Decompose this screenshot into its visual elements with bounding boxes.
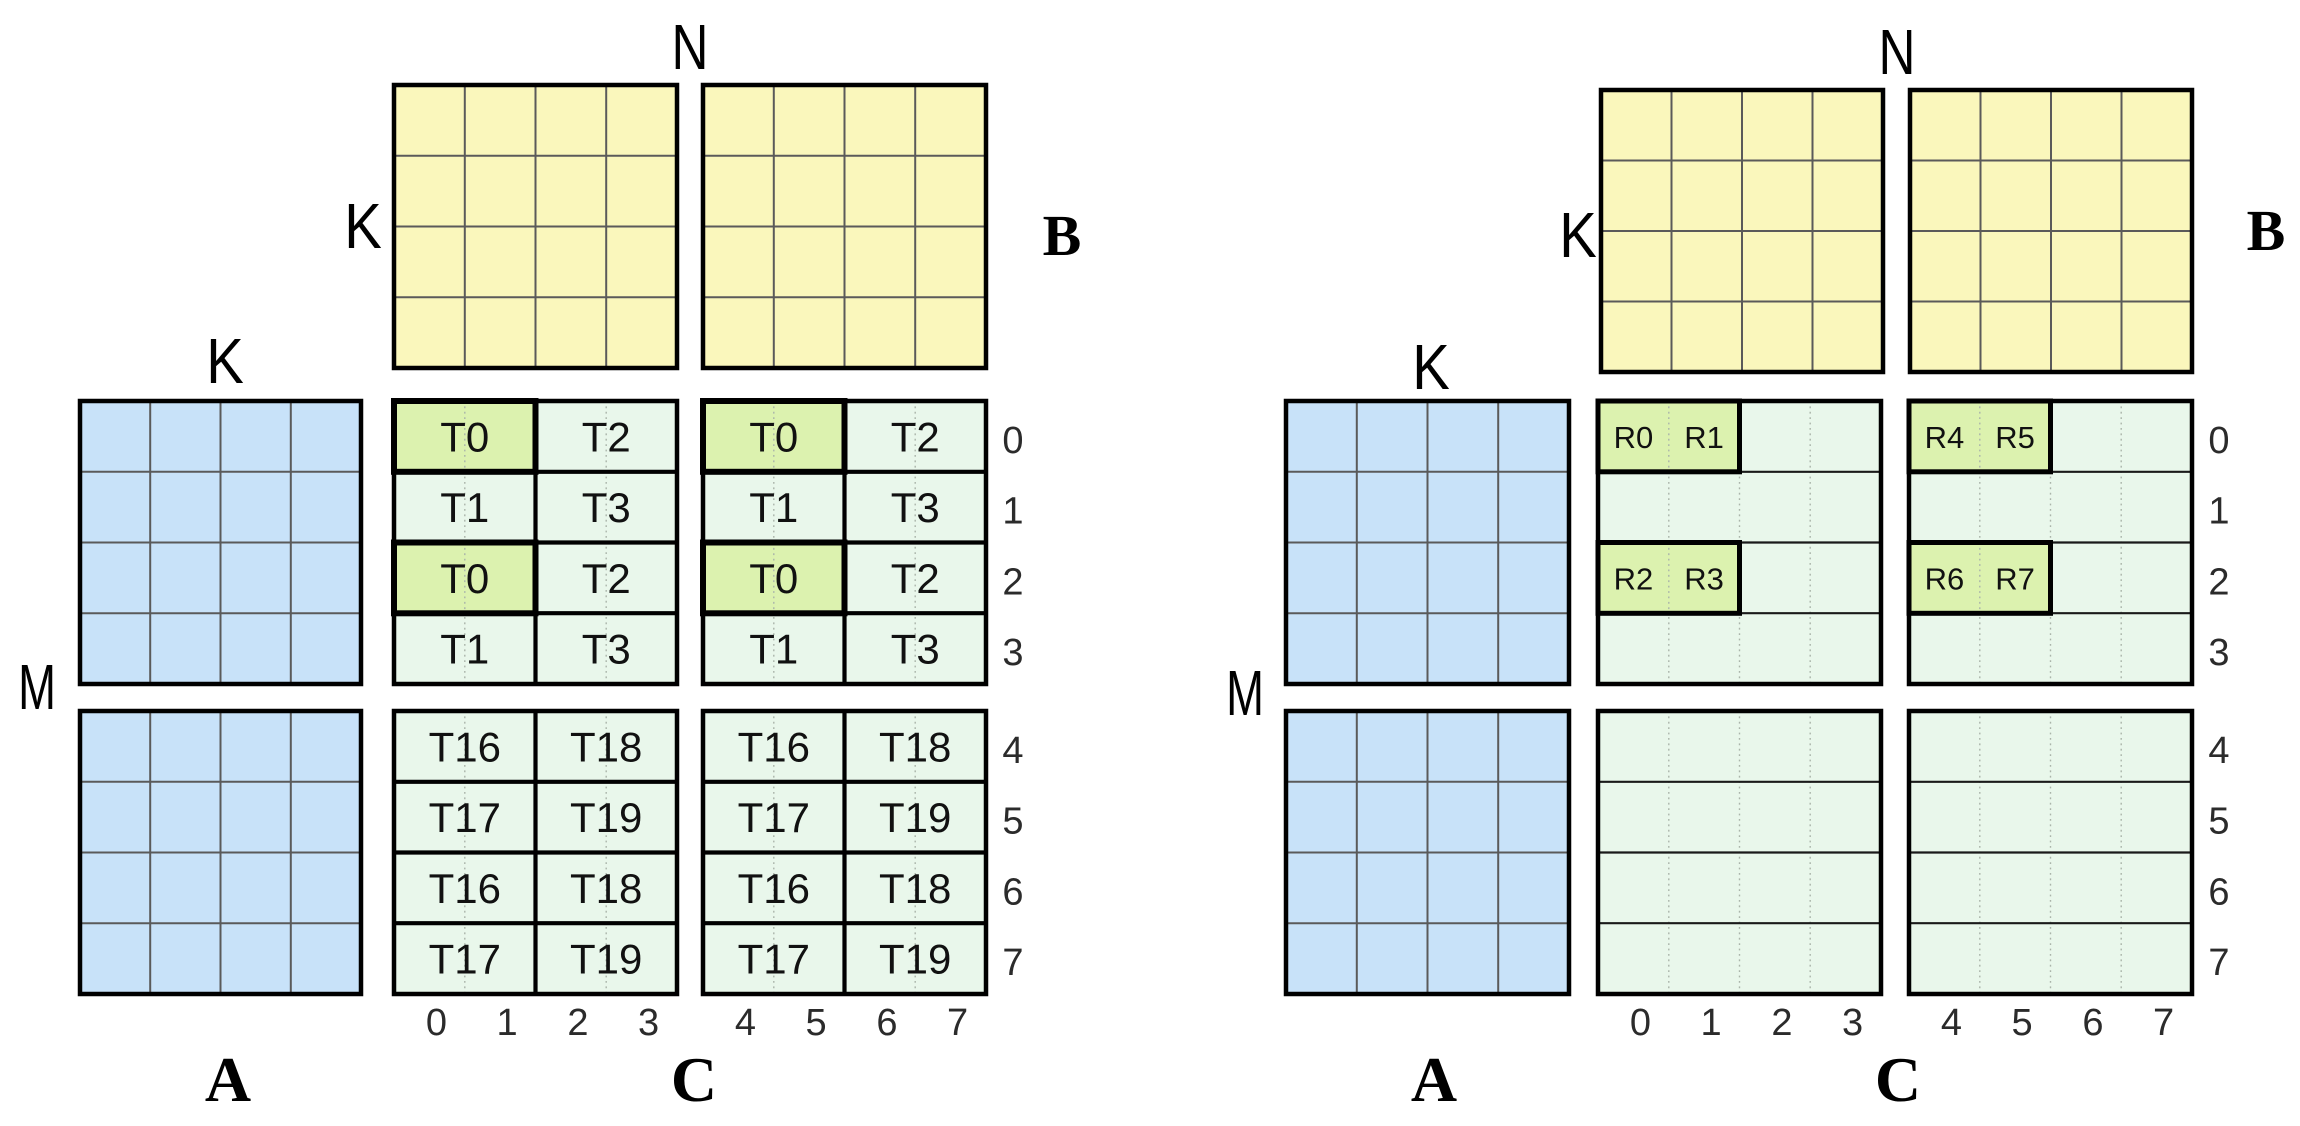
svg-text:C: C bbox=[671, 1044, 717, 1115]
svg-text:A: A bbox=[1411, 1044, 1457, 1115]
svg-text:K: K bbox=[344, 190, 382, 262]
svg-text:4: 4 bbox=[2208, 730, 2229, 772]
svg-text:T2: T2 bbox=[891, 413, 940, 460]
svg-text:T16: T16 bbox=[429, 865, 501, 912]
svg-text:1: 1 bbox=[1002, 491, 1023, 533]
svg-text:5: 5 bbox=[1002, 801, 1023, 843]
svg-text:7: 7 bbox=[2153, 1002, 2174, 1044]
svg-text:T3: T3 bbox=[891, 626, 940, 673]
svg-text:M: M bbox=[1226, 657, 1264, 728]
svg-text:T1: T1 bbox=[749, 626, 798, 673]
svg-text:T0: T0 bbox=[749, 413, 798, 460]
svg-text:4: 4 bbox=[1941, 1002, 1962, 1044]
svg-text:K: K bbox=[1412, 331, 1450, 403]
svg-text:T2: T2 bbox=[582, 413, 631, 460]
svg-text:3: 3 bbox=[1842, 1002, 1863, 1044]
svg-text:6: 6 bbox=[1002, 871, 1023, 913]
svg-text:T1: T1 bbox=[440, 626, 489, 673]
svg-text:T16: T16 bbox=[738, 865, 810, 912]
svg-text:T17: T17 bbox=[738, 794, 810, 841]
svg-text:N: N bbox=[672, 13, 709, 84]
svg-text:T19: T19 bbox=[570, 794, 642, 841]
svg-text:6: 6 bbox=[2208, 871, 2229, 913]
svg-text:T2: T2 bbox=[582, 555, 631, 602]
svg-text:0: 0 bbox=[426, 1002, 447, 1044]
svg-text:T18: T18 bbox=[879, 723, 951, 770]
svg-text:4: 4 bbox=[735, 1002, 756, 1044]
svg-text:B: B bbox=[1043, 203, 1082, 268]
svg-text:R0: R0 bbox=[1614, 420, 1654, 455]
svg-text:R5: R5 bbox=[1995, 420, 2035, 455]
svg-text:T17: T17 bbox=[738, 936, 810, 983]
svg-text:T19: T19 bbox=[879, 794, 951, 841]
svg-text:R3: R3 bbox=[1684, 561, 1724, 596]
svg-text:R4: R4 bbox=[1925, 420, 1965, 455]
svg-text:T0: T0 bbox=[749, 555, 798, 602]
svg-text:5: 5 bbox=[2208, 801, 2229, 843]
svg-text:B: B bbox=[2247, 198, 2286, 263]
svg-text:T19: T19 bbox=[570, 936, 642, 983]
svg-text:T1: T1 bbox=[440, 484, 489, 531]
svg-text:2: 2 bbox=[1002, 561, 1023, 603]
svg-text:0: 0 bbox=[1002, 420, 1023, 462]
svg-text:T1: T1 bbox=[749, 484, 798, 531]
svg-text:6: 6 bbox=[876, 1002, 897, 1044]
svg-text:T17: T17 bbox=[429, 936, 501, 983]
svg-text:T18: T18 bbox=[570, 865, 642, 912]
svg-text:N: N bbox=[1879, 18, 1916, 89]
svg-text:0: 0 bbox=[1630, 1002, 1651, 1044]
svg-text:1: 1 bbox=[1701, 1002, 1722, 1044]
svg-text:R1: R1 bbox=[1684, 420, 1724, 455]
svg-text:7: 7 bbox=[1002, 942, 1023, 984]
svg-text:M: M bbox=[18, 651, 56, 722]
svg-text:T17: T17 bbox=[429, 794, 501, 841]
svg-text:3: 3 bbox=[2208, 632, 2229, 674]
svg-text:0: 0 bbox=[2208, 420, 2229, 462]
svg-text:6: 6 bbox=[2082, 1002, 2103, 1044]
svg-text:2: 2 bbox=[2208, 561, 2229, 603]
svg-text:2: 2 bbox=[1771, 1002, 1792, 1044]
svg-text:C: C bbox=[1875, 1044, 1921, 1115]
svg-text:T3: T3 bbox=[891, 484, 940, 531]
svg-text:T18: T18 bbox=[570, 723, 642, 770]
svg-text:2: 2 bbox=[567, 1002, 588, 1044]
svg-text:3: 3 bbox=[638, 1002, 659, 1044]
svg-text:5: 5 bbox=[2012, 1002, 2033, 1044]
svg-text:R7: R7 bbox=[1995, 561, 2035, 596]
svg-text:1: 1 bbox=[497, 1002, 518, 1044]
svg-text:4: 4 bbox=[1002, 730, 1023, 772]
svg-text:K: K bbox=[1559, 199, 1597, 271]
svg-text:T18: T18 bbox=[879, 865, 951, 912]
svg-text:T3: T3 bbox=[582, 626, 631, 673]
svg-text:5: 5 bbox=[806, 1002, 827, 1044]
svg-text:T3: T3 bbox=[582, 484, 631, 531]
svg-text:T2: T2 bbox=[891, 555, 940, 602]
svg-text:T16: T16 bbox=[429, 723, 501, 770]
svg-text:R2: R2 bbox=[1614, 561, 1654, 596]
svg-text:R6: R6 bbox=[1925, 561, 1965, 596]
svg-text:T19: T19 bbox=[879, 936, 951, 983]
svg-text:3: 3 bbox=[1002, 632, 1023, 674]
svg-text:7: 7 bbox=[947, 1002, 968, 1044]
svg-text:T0: T0 bbox=[440, 413, 489, 460]
svg-text:T0: T0 bbox=[440, 555, 489, 602]
svg-text:1: 1 bbox=[2208, 491, 2229, 533]
svg-text:7: 7 bbox=[2208, 942, 2229, 984]
svg-text:A: A bbox=[205, 1044, 251, 1115]
svg-text:T16: T16 bbox=[738, 723, 810, 770]
svg-text:K: K bbox=[206, 325, 244, 397]
